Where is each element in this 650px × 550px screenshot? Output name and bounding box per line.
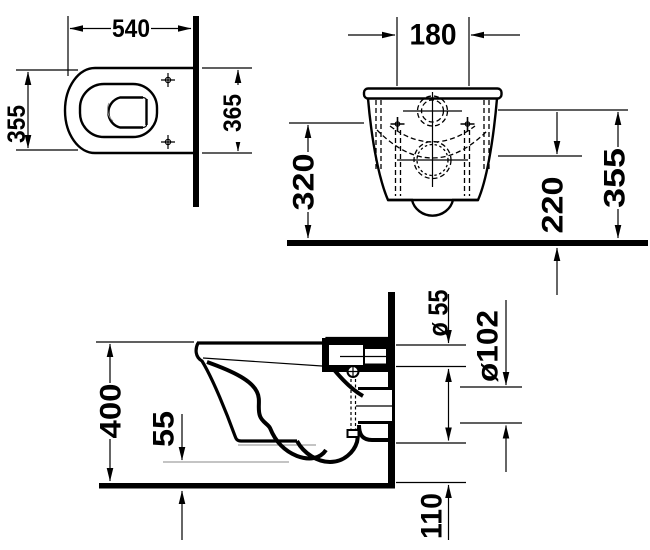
- flush-opening-detail: [108, 98, 147, 128]
- dim-label-dia-102: ø102: [472, 310, 505, 382]
- technical-drawing-sheet: 540 355 365: [0, 0, 650, 550]
- front-outline: [196, 343, 297, 441]
- dim-label-320: 320: [288, 154, 321, 211]
- fixing-hole-front-right: [461, 117, 475, 131]
- dim-label-dia-55: ø 55: [423, 290, 454, 337]
- top-view: 540 355 365: [3, 15, 252, 207]
- bowl-outline-top: [65, 68, 193, 153]
- floor-line-side-view: [99, 483, 395, 489]
- dim-dia-102: ø102: [472, 300, 507, 472]
- dim-label-355-front: 355: [599, 148, 632, 208]
- floor-line-front-view: [287, 240, 648, 246]
- dim-320: 320: [288, 123, 365, 238]
- dim-label-180: 180: [410, 19, 457, 52]
- dim-180: 180: [348, 17, 520, 86]
- dim-label-365: 365: [219, 94, 247, 132]
- dim-label-220: 220: [537, 177, 570, 234]
- centerlines-front: [397, 92, 468, 187]
- flush-inlet-box: [328, 344, 364, 366]
- dim-label-540: 540: [112, 15, 150, 43]
- dim-label-400: 400: [95, 384, 128, 439]
- toilet-profile-side: [196, 338, 392, 462]
- fixing-hole-top-2: [161, 135, 175, 149]
- wall-section-top-view: [193, 16, 199, 207]
- dim-label-110: 110: [416, 493, 449, 539]
- inner-seat-line: [203, 358, 322, 366]
- fixing-hole-front-left: [391, 117, 405, 131]
- toilet-installation-drawing: 540 355 365: [0, 0, 650, 550]
- dim-55: 55: [148, 411, 290, 540]
- dim-110: 110: [416, 485, 449, 540]
- front-view: 180 320 220 355: [287, 17, 648, 295]
- dim-220: 220: [498, 112, 582, 295]
- dim-365: 365: [202, 68, 252, 153]
- dim-dia-55: ø 55: [423, 290, 454, 441]
- dim-label-355-top: 355: [3, 105, 31, 143]
- dim-label-55: 55: [148, 411, 181, 447]
- side-view: 400 55 ø 55 ø102: [95, 290, 523, 541]
- fixing-hole-top-1: [161, 73, 175, 87]
- dim-355-top: 355: [3, 70, 78, 150]
